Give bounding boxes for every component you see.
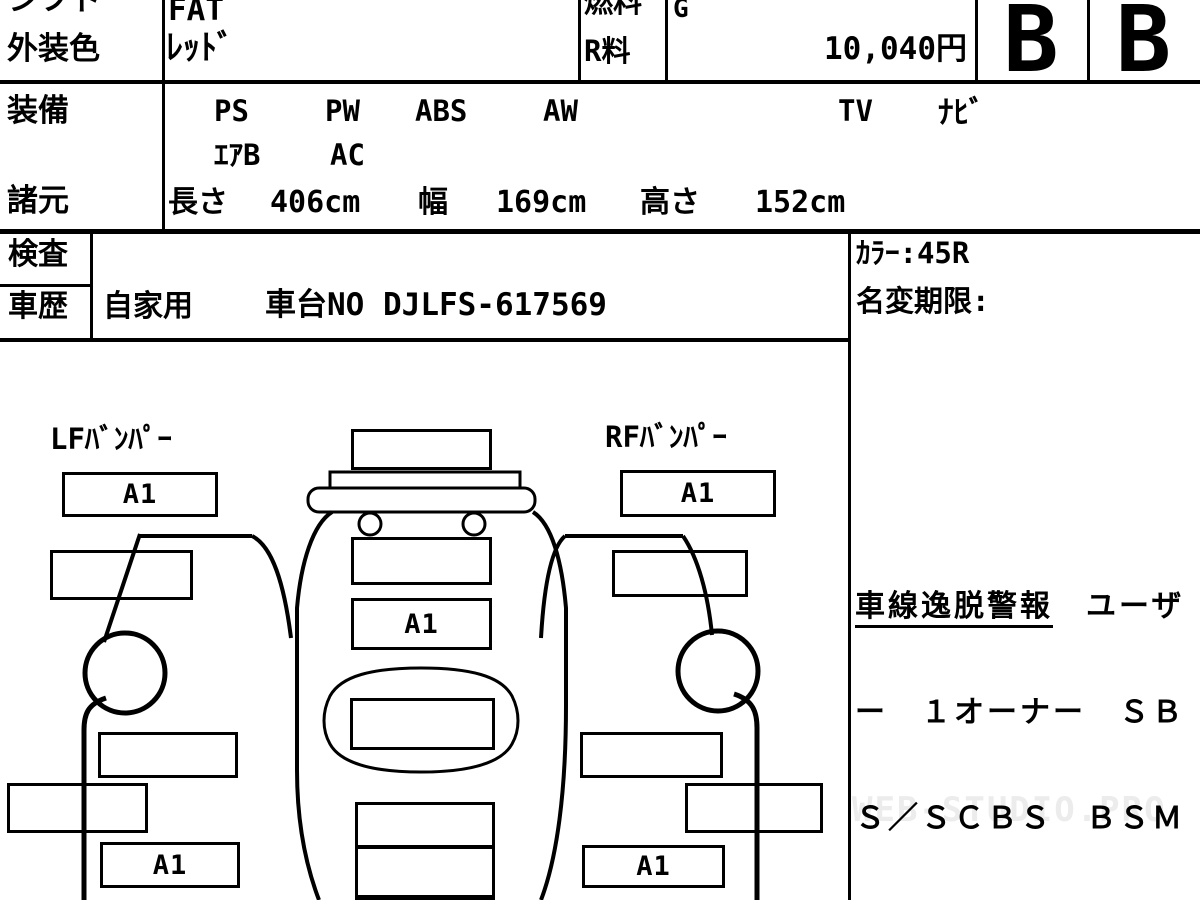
diagonal-line-left [104, 534, 140, 642]
callout-lines-svg [0, 0, 1200, 900]
drop-line-left [84, 698, 106, 900]
drop-line-right [734, 694, 757, 900]
auction-sheet: シフト 外装色 FAT ﾚｯﾄﾞ 燃料 R料 G 10,040円 B B 装備 … [0, 0, 1200, 900]
diagonal-line-right [683, 536, 712, 635]
